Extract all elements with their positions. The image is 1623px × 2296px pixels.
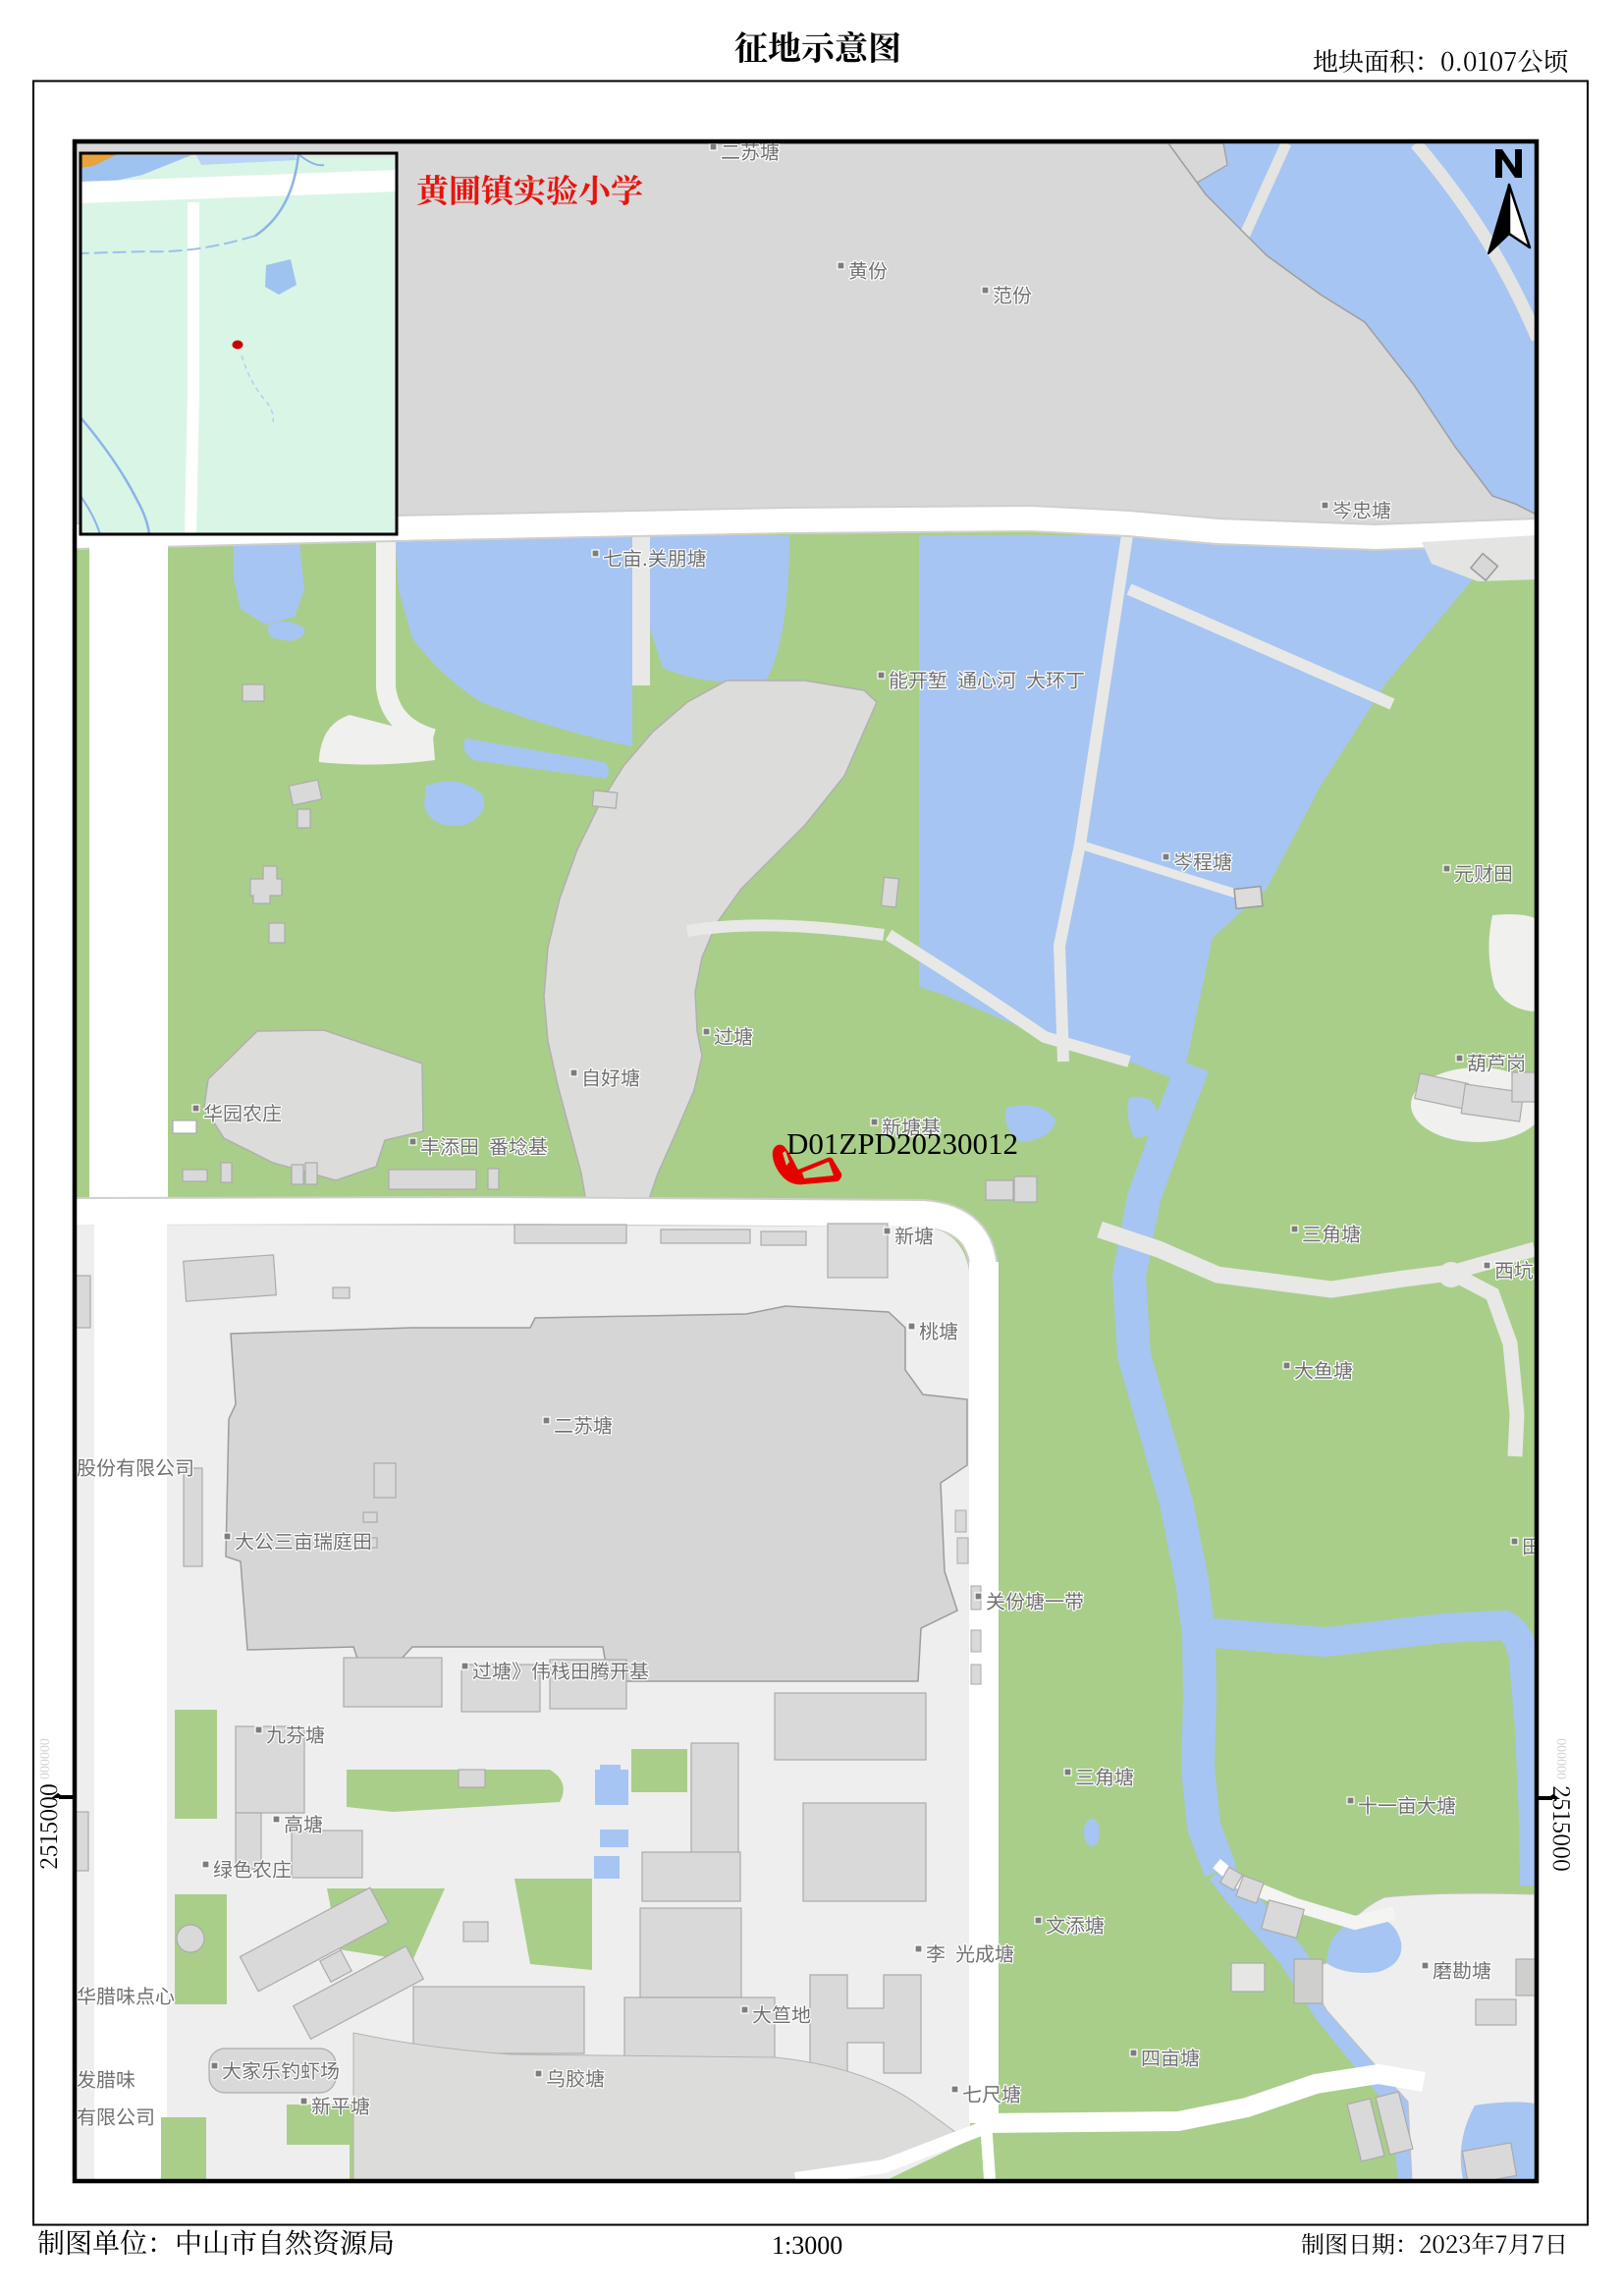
svg-text:1:3000: 1:3000 <box>772 2231 842 2260</box>
svg-text:D01ZPD20230012: D01ZPD20230012 <box>786 1126 1018 1161</box>
